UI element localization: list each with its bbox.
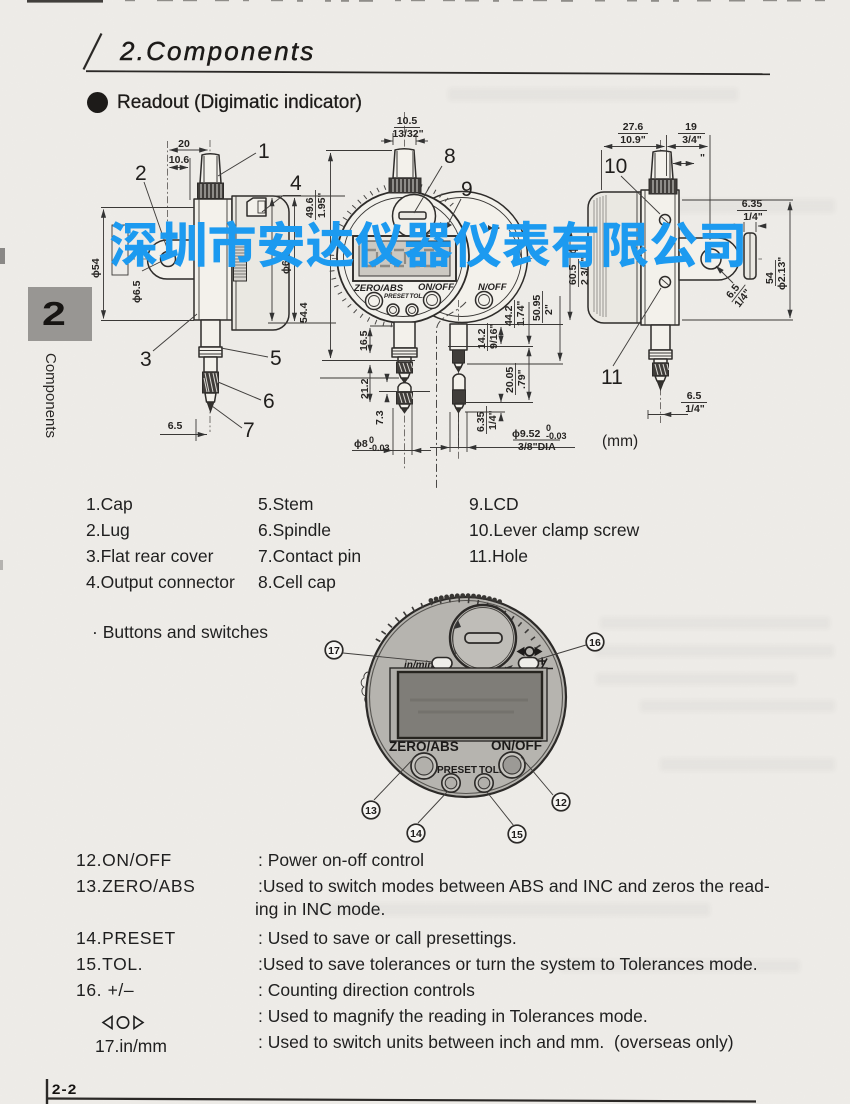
svg-text:3: 3: [140, 348, 152, 371]
svg-text:10: 10: [604, 155, 627, 178]
svg-text:ϕ8: ϕ8: [354, 438, 368, 450]
svg-text:6.5: 6.5: [687, 390, 702, 402]
svg-text:13/32": 13/32": [392, 128, 423, 140]
svg-text:10.5: 10.5: [397, 115, 418, 127]
svg-text:19: 19: [685, 121, 697, 133]
svg-text:1: 1: [258, 140, 270, 163]
svg-text:13: 13: [365, 805, 377, 817]
svg-text:1.95": 1.95": [316, 193, 328, 218]
svg-text:20.05: 20.05: [504, 367, 516, 393]
svg-text:10.9": 10.9": [620, 134, 645, 146]
svg-text:.79": .79": [516, 369, 528, 389]
svg-text:6: 6: [263, 390, 275, 413]
svg-text:-0.03: -0.03: [546, 431, 567, 441]
svg-text:44.2: 44.2: [503, 305, 515, 326]
svg-text:10.6: 10.6: [169, 154, 190, 166]
svg-text:5: 5: [270, 347, 282, 370]
svg-text:15: 15: [511, 829, 523, 841]
svg-text:6.5: 6.5: [168, 420, 183, 432]
svg-text:12: 12: [555, 797, 567, 809]
svg-text:60.5: 60.5: [567, 264, 579, 285]
svg-text:20: 20: [178, 138, 190, 150]
svg-text:ϕ6.5: ϕ6.5: [131, 280, 143, 303]
svg-text:14: 14: [410, 828, 422, 840]
svg-text:ZERO/ABS: ZERO/ABS: [389, 739, 459, 754]
svg-text:8: 8: [444, 145, 456, 168]
svg-text:TOL.: TOL.: [410, 293, 425, 300]
svg-text:16: 16: [589, 637, 601, 649]
svg-text:(mm): (mm): [602, 433, 638, 450]
svg-text:1/4": 1/4": [685, 403, 705, 415]
svg-text:PRESET: PRESET: [384, 293, 410, 300]
svg-text:1/4": 1/4": [487, 410, 499, 430]
svg-text:54.4: 54.4: [298, 302, 310, 323]
svg-text:7: 7: [243, 419, 255, 442]
svg-text:21.2: 21.2: [359, 378, 371, 399]
svg-text:17: 17: [328, 645, 340, 657]
svg-text:9: 9: [461, 178, 473, 201]
svg-text:54: 54: [764, 272, 776, 284]
svg-text:2": 2": [543, 304, 555, 315]
svg-text:9/16": 9/16": [488, 324, 500, 349]
svg-text:6.35: 6.35: [475, 411, 487, 432]
svg-text:2: 2: [135, 162, 147, 185]
svg-text:27.6: 27.6: [623, 121, 644, 133]
svg-text:4: 4: [290, 172, 302, 195]
svg-text:11: 11: [601, 366, 623, 389]
svg-text:49.6: 49.6: [304, 197, 316, 218]
svg-text:ϕ54: ϕ54: [90, 258, 102, 278]
svg-text:ϕ9.52: ϕ9.52: [512, 428, 540, 440]
svg-text:1/4": 1/4": [743, 211, 763, 223]
svg-text:ϕ2.13": ϕ2.13": [776, 257, 788, 290]
svg-text:3/4": 3/4": [682, 134, 702, 146]
svg-text:7.3: 7.3: [374, 410, 386, 425]
svg-text:14.2: 14.2: [476, 328, 488, 349]
svg-text:ON/OFF: ON/OFF: [418, 282, 454, 293]
svg-text:16.5: 16.5: [358, 330, 370, 351]
svg-text:50.95: 50.95: [531, 295, 543, 321]
svg-text:1.74": 1.74": [515, 301, 527, 326]
svg-text:ON/OFF: ON/OFF: [491, 738, 542, 753]
svg-text:3/8"DIA: 3/8"DIA: [518, 441, 556, 453]
svg-text:": ": [700, 152, 705, 164]
svg-text:-0.03: -0.03: [369, 443, 390, 453]
svg-text:PRESET: PRESET: [437, 765, 477, 776]
